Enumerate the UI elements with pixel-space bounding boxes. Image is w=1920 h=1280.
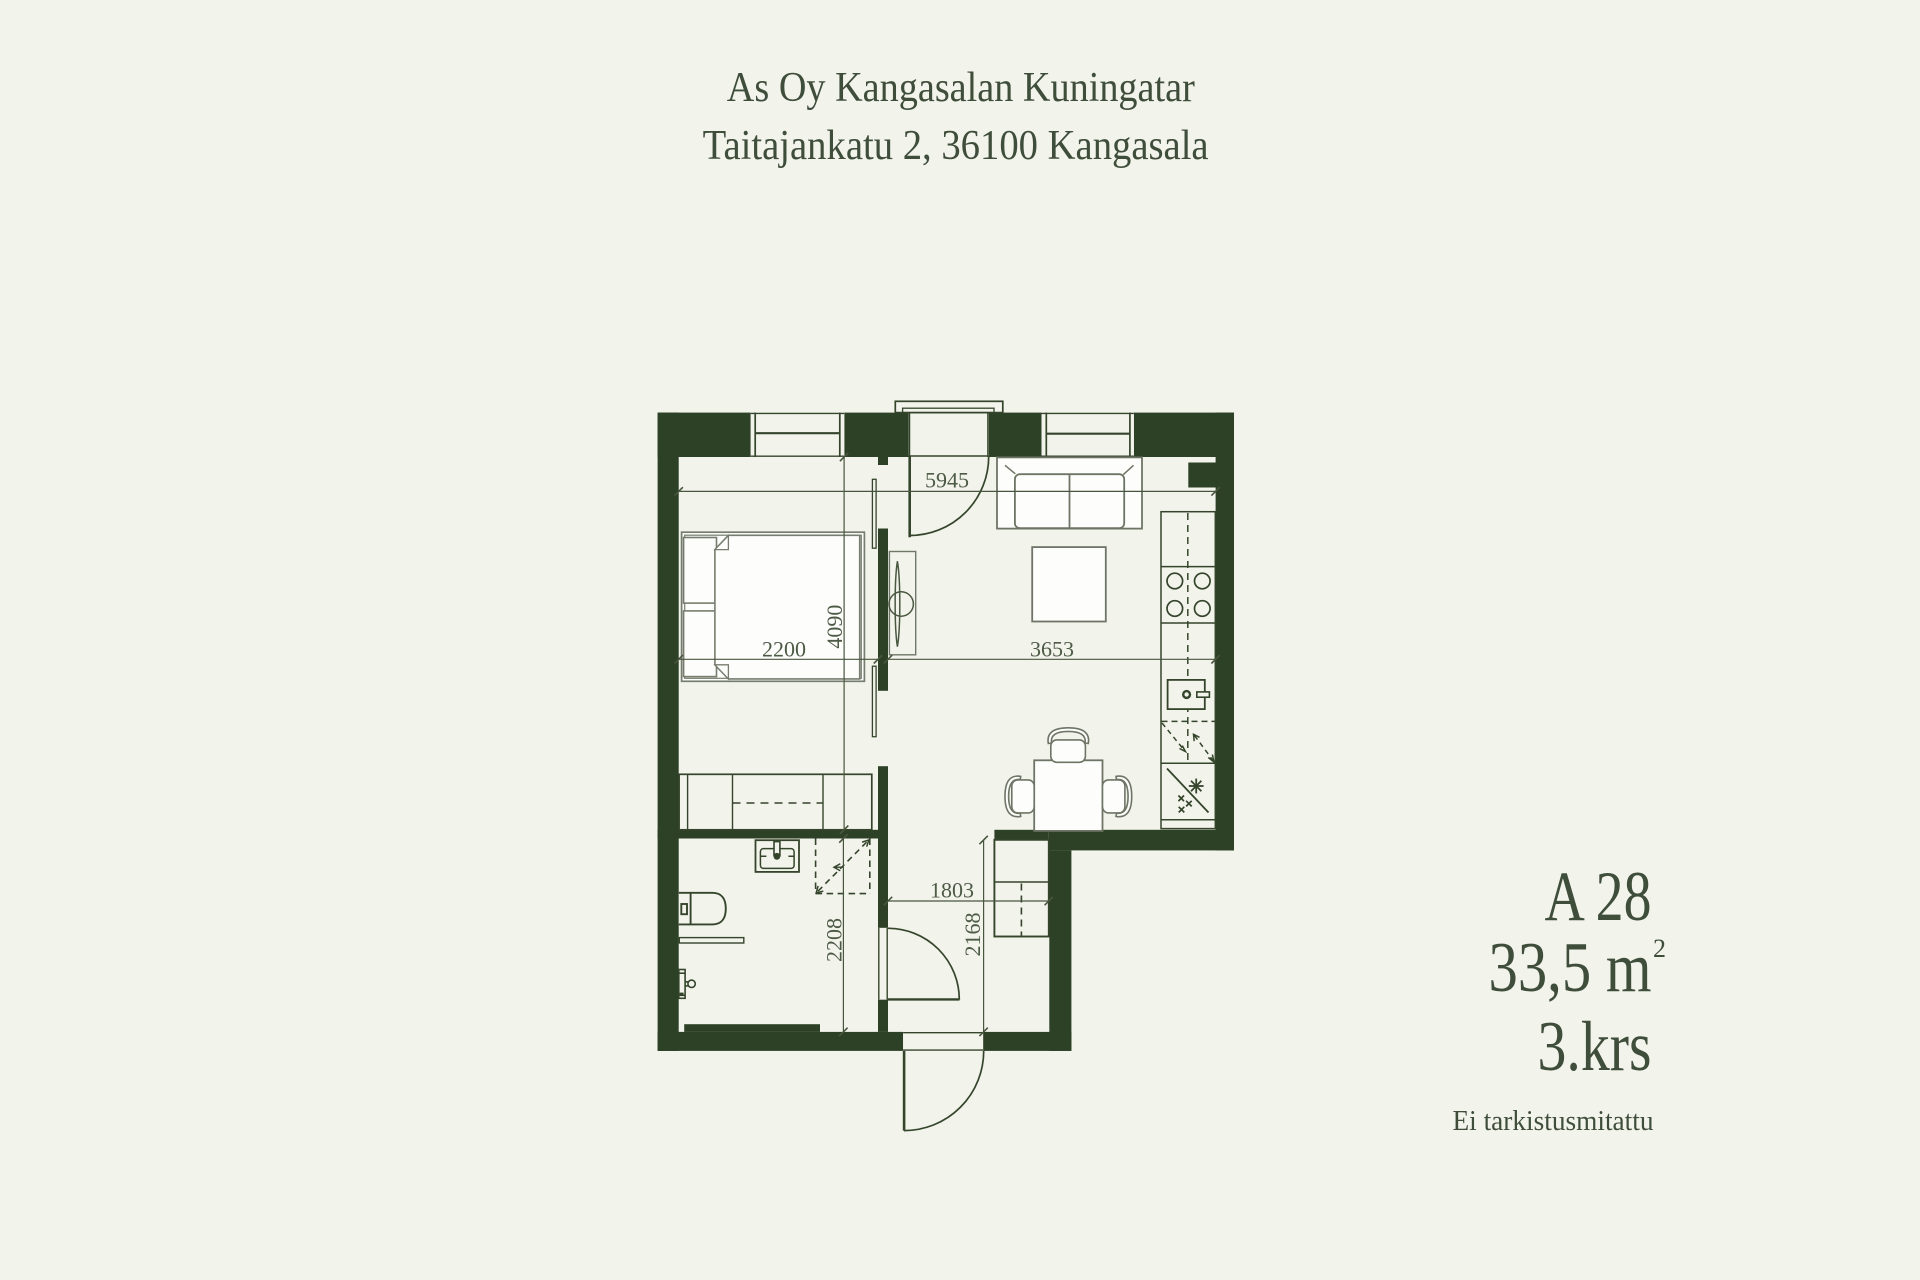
- svg-text:As Oy Kangasalan Kuningatar: As Oy Kangasalan Kuningatar: [727, 65, 1195, 111]
- svg-text:2168: 2168: [960, 913, 985, 957]
- svg-text:1803: 1803: [930, 877, 974, 902]
- svg-text:A 28: A 28: [1545, 858, 1652, 936]
- svg-text:Taitajankatu 2, 36100 Kangasal: Taitajankatu 2, 36100 Kangasala: [703, 123, 1209, 169]
- svg-text:2200: 2200: [762, 637, 806, 662]
- svg-text:3653: 3653: [1030, 637, 1074, 662]
- svg-text:5945: 5945: [925, 468, 969, 493]
- svg-text:2208: 2208: [822, 918, 847, 962]
- svg-text:4090: 4090: [822, 605, 847, 649]
- svg-text:Ei tarkistusmitattu: Ei tarkistusmitattu: [1453, 1105, 1654, 1137]
- svg-text:3.krs: 3.krs: [1538, 1008, 1652, 1086]
- svg-text:33,5 m: 33,5 m: [1489, 929, 1652, 1007]
- svg-text:2: 2: [1653, 934, 1666, 963]
